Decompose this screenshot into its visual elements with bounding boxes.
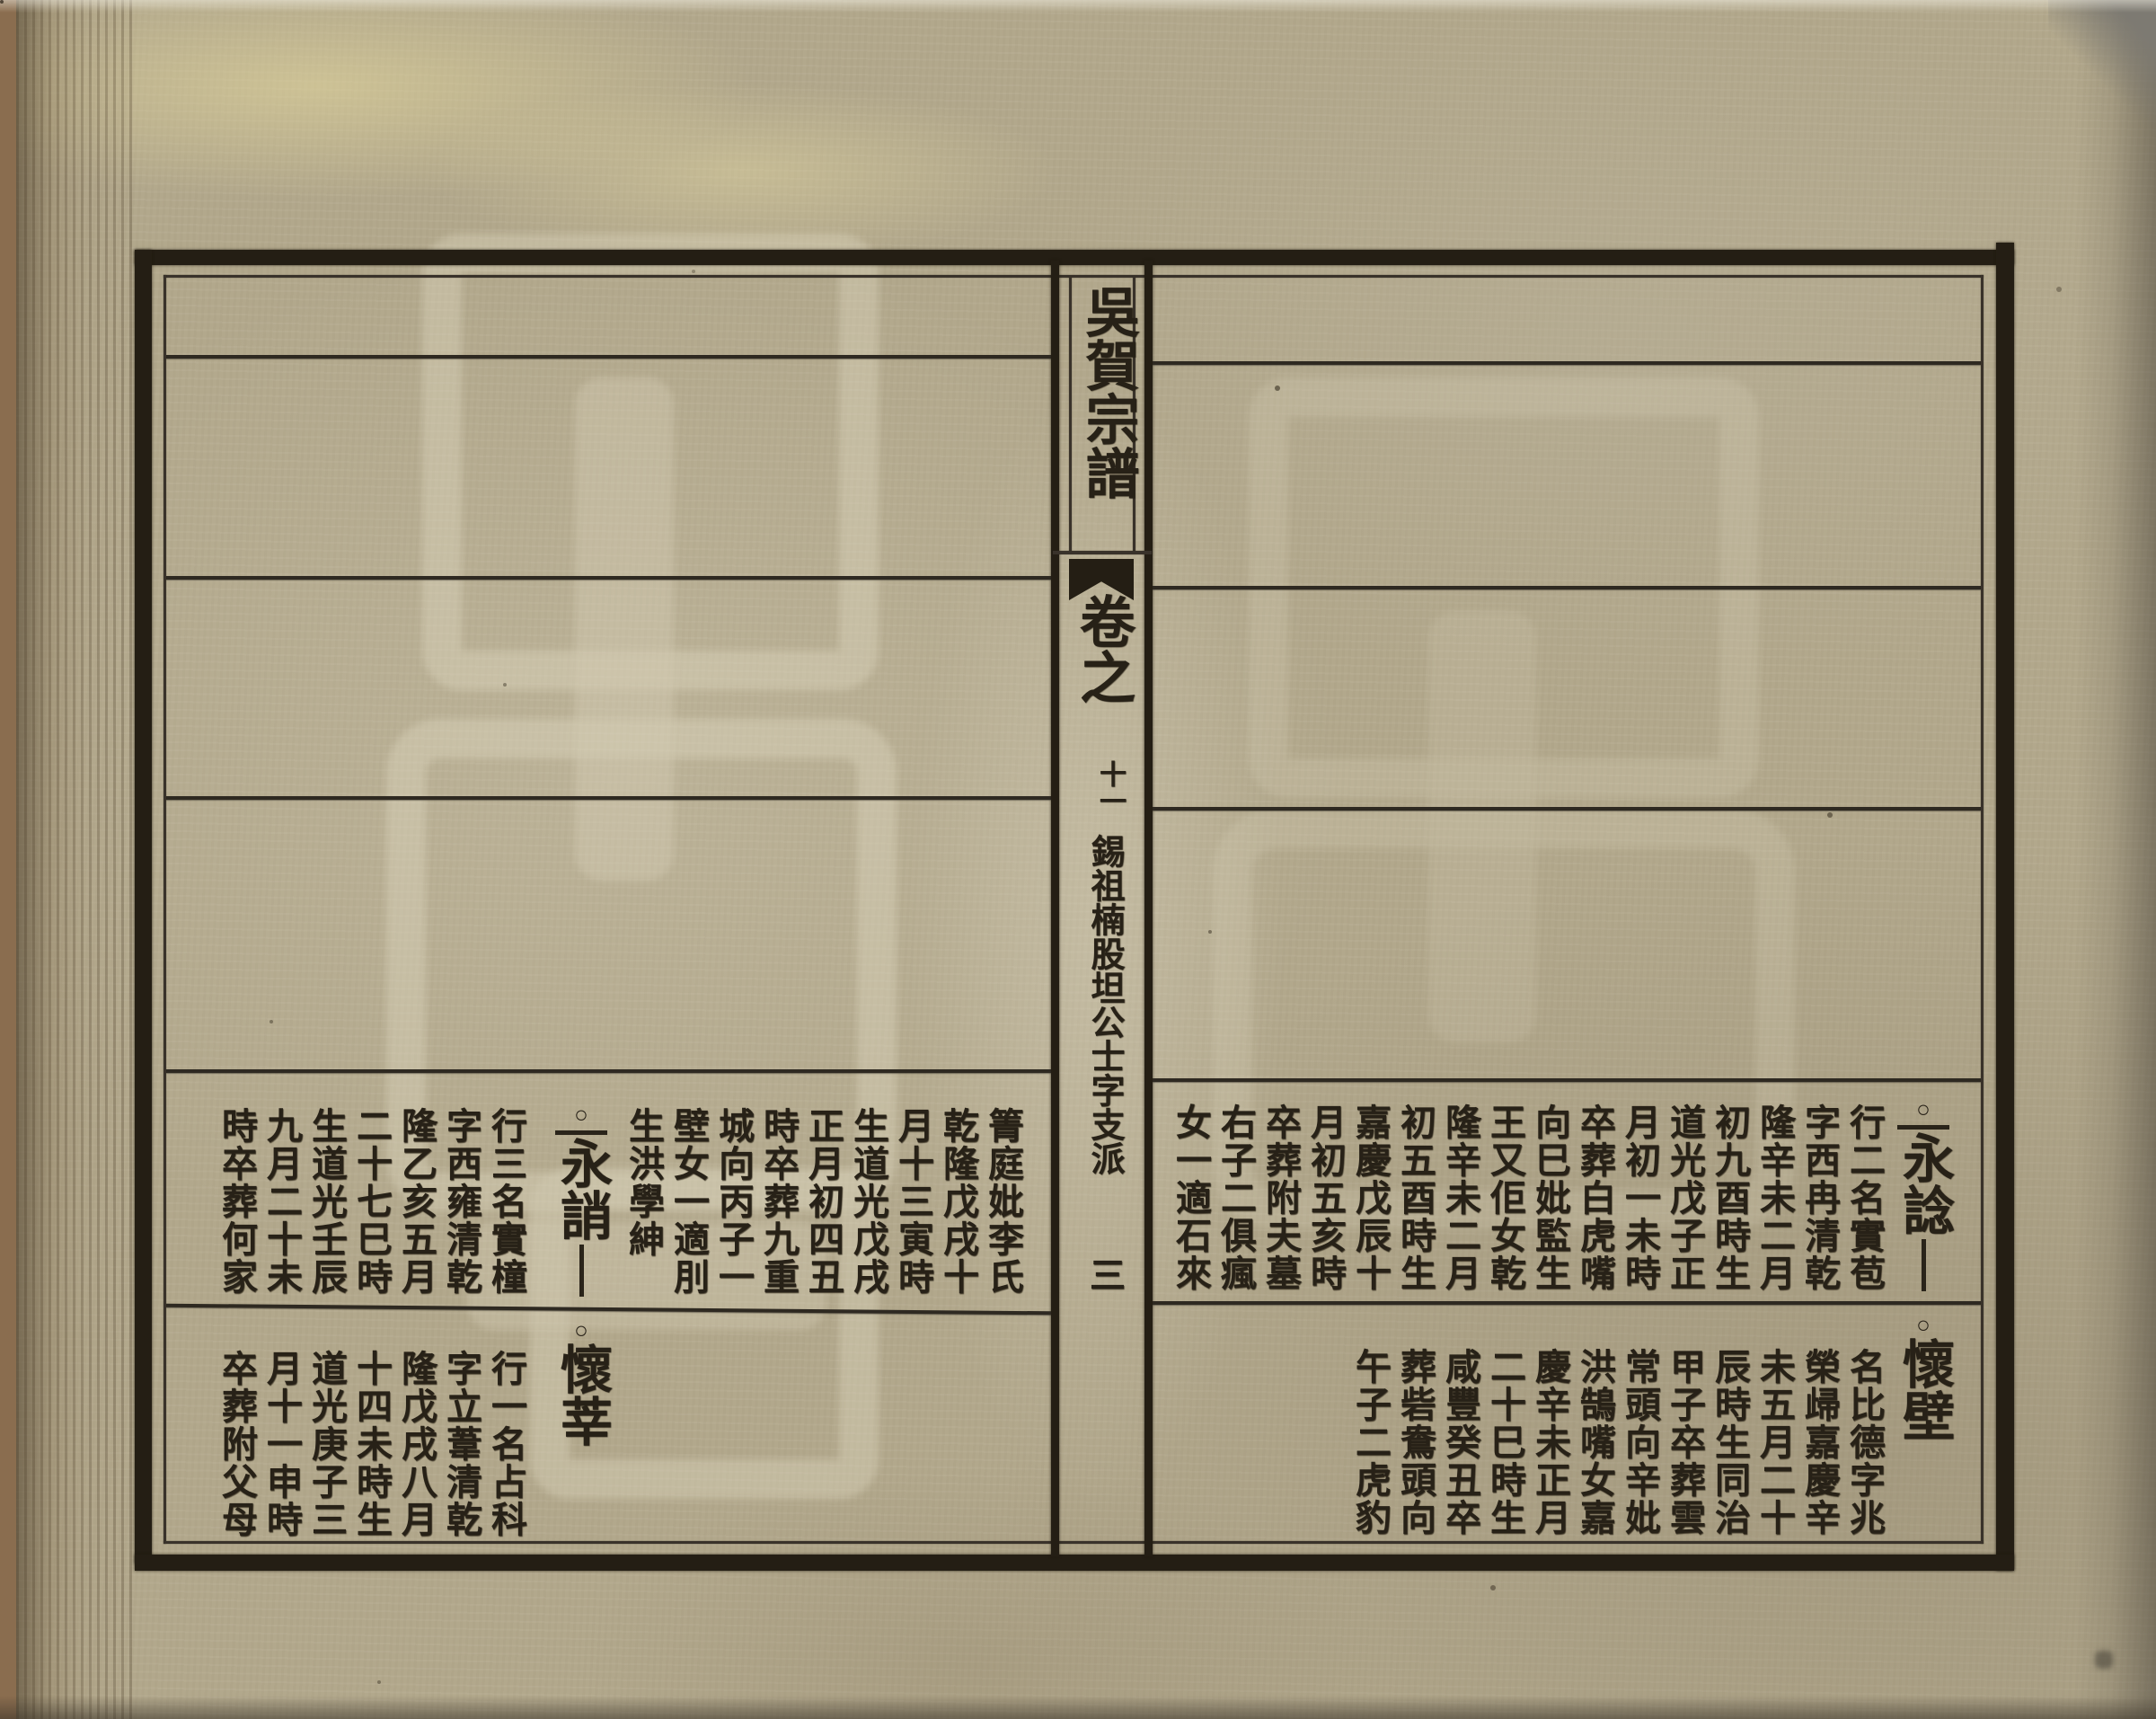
genealogy-scan-spread: 吳賀宗譜 卷之 十一 錫祖楠股坦公士字支派 三 箐庭妣李氏乾隆戊戌十月十三寅時生… [0, 0, 2156, 1719]
ancestor-name: 永誚 [545, 1137, 617, 1241]
text-column: 生道光戊戌 [848, 1107, 888, 1307]
text-column: 城向丙子一 [713, 1107, 753, 1307]
right-upper-detail-columns: 行二名實苞字西冉清乾隆辛未二月初九酉時生道光戊子正月初一未時卒葬白虎嘴向巳妣監生… [1165, 1103, 1884, 1303]
text-column: 向巳妣監生 [1530, 1103, 1569, 1303]
book-title: 吳賀宗譜 [1063, 284, 1140, 500]
page-number: 三 [1081, 1256, 1122, 1292]
branch-section-note: 錫祖楠股坦公士字支派 [1082, 834, 1122, 1175]
volume-label: 卷之 [1065, 593, 1137, 704]
text-column: 甲子卒葬雲 [1665, 1348, 1704, 1547]
inner-left-line [163, 275, 166, 1544]
text-column: 十四未時生 [351, 1350, 391, 1549]
lineage-circle-marker: ○ [574, 1319, 588, 1342]
top-right-corner-backdrop [2048, 0, 2156, 144]
paper-top-edge [0, 0, 2156, 13]
column-rule [166, 796, 1051, 800]
text-column: 右子二俱瘋 [1215, 1103, 1255, 1303]
lineage-circle-marker: ○ [574, 1103, 588, 1127]
ancestor-name: 懷壁 [1887, 1337, 1959, 1441]
inner-top-line [163, 275, 1984, 278]
column-rule [166, 576, 1051, 580]
spine-right-rule [1144, 261, 1153, 1556]
text-column: 卒葬附夫墓 [1260, 1103, 1300, 1303]
paper-bottom-edge [0, 1696, 2156, 1719]
frame-right-border [1996, 243, 2014, 1571]
descent-line-bottom [579, 1245, 584, 1297]
frame-bottom-border [135, 1555, 2014, 1571]
column-rule [1153, 1078, 1981, 1082]
ancestor-name: 懷莘 [545, 1342, 617, 1447]
text-column: 王又佢女乾 [1485, 1103, 1524, 1303]
text-column: 行二名實苞 [1844, 1103, 1884, 1303]
text-column: 未五月二十 [1754, 1348, 1794, 1547]
text-column: 卒葬白虎嘴 [1575, 1103, 1614, 1303]
descent-line-top [555, 1130, 607, 1135]
left-upper-intro-columns: 箐庭妣李氏乾隆戊戌十月十三寅時生道光戊戌正月初四丑時卒葬九重城向丙子一壁女一適刖… [618, 1107, 1022, 1307]
text-column: 隆辛未二月 [1754, 1103, 1794, 1303]
ancestor-entry-upper-left: ○ 永誚 [546, 1103, 616, 1297]
text-column: 月初一未時 [1620, 1103, 1659, 1303]
left-lower-detail-columns: 行一名占科字立葦清乾隆戊戌八月十四未時生道光庚子三月十一申時卒葬附父母 [211, 1350, 526, 1549]
column-rule [1153, 807, 1981, 811]
text-column: 洪鵠嘴女嘉 [1575, 1348, 1614, 1547]
text-column: 咸豐癸丑卒 [1440, 1348, 1480, 1547]
text-column: 行一名占科 [486, 1350, 526, 1549]
text-column: 箐庭妣李氏 [983, 1107, 1022, 1307]
text-column: 隆辛未二月 [1440, 1103, 1480, 1303]
text-column: 常頭向辛妣 [1620, 1348, 1659, 1547]
text-column: 生洪學紳 [623, 1107, 663, 1307]
text-column: 月初五亥時 [1305, 1103, 1345, 1303]
right-lower-detail-columns: 名比德字兆榮㱕嘉慶辛未五月二十辰時生同治甲子卒葬雲常頭向辛妣洪鵠嘴女嘉慶辛未正月… [1345, 1348, 1884, 1547]
text-column: 榮㱕嘉慶辛 [1799, 1348, 1839, 1547]
inner-right-line [1981, 275, 1984, 1544]
text-column: 行三名實橦 [486, 1107, 526, 1307]
left-upper-detail-columns: 行三名實橦字西雍清乾隆乙亥五月二十七巳時生道光壬辰九月二十未時卒葬何家 [211, 1107, 526, 1307]
text-column: 二十巳時生 [1485, 1348, 1524, 1547]
frame-top-border [135, 250, 2014, 265]
book-page-stack-edge [16, 0, 133, 1719]
ancestor-entry-lower-right: ○ 懷壁 [1888, 1314, 1958, 1441]
text-column: 葬砦鴦頭向 [1395, 1348, 1435, 1547]
text-column: 女一適石來 [1171, 1103, 1210, 1303]
ancestor-name: 永諗 [1887, 1131, 1959, 1236]
text-column: 字西雍清乾 [441, 1107, 481, 1307]
text-column: 字立葦清乾 [441, 1350, 481, 1549]
paper-specks [0, 0, 4, 4]
text-column: 隆戊戌八月 [396, 1350, 436, 1549]
text-column: 慶辛未正月 [1530, 1348, 1569, 1547]
text-column: 月十一申時 [261, 1350, 301, 1549]
column-rule [166, 1069, 1051, 1073]
lineage-circle-marker: ○ [1916, 1314, 1931, 1337]
text-column: 午子二虎豹 [1350, 1348, 1390, 1547]
text-column: 正月初四丑 [803, 1107, 843, 1307]
text-column: 隆乙亥五月 [396, 1107, 436, 1307]
ancestor-entry-upper-right: ○ 永諗 [1888, 1098, 1958, 1291]
descent-line-top [1897, 1125, 1949, 1130]
ancestor-entry-lower-left: ○ 懷莘 [546, 1319, 616, 1447]
text-column: 初五酉時生 [1395, 1103, 1435, 1303]
text-column: 時卒葬九重 [758, 1107, 798, 1307]
text-column: 月十三寅時 [893, 1107, 932, 1307]
text-column: 時卒葬何家 [216, 1107, 256, 1307]
text-column: 字西冉清乾 [1799, 1103, 1839, 1303]
frame-left-border [135, 250, 152, 1564]
spine-left-rule [1051, 261, 1059, 1556]
right-page-curl-shadow [2075, 0, 2156, 1719]
column-rule [1153, 361, 1981, 365]
lineage-circle-marker: ○ [1916, 1098, 1931, 1121]
column-rule [166, 355, 1051, 359]
text-column: 名比德字兆 [1844, 1348, 1884, 1547]
text-column: 嘉慶戊辰十 [1350, 1103, 1390, 1303]
text-column: 初九酉時生 [1710, 1103, 1749, 1303]
descent-line-bottom [1922, 1239, 1926, 1291]
text-column: 辰時生同治 [1710, 1348, 1749, 1547]
volume-number: 十一 [1081, 760, 1122, 814]
text-column: 乾隆戊戌十 [938, 1107, 977, 1307]
text-column: 生道光壬辰 [306, 1107, 346, 1307]
text-column: 二十七巳時 [351, 1107, 391, 1307]
text-column: 九月二十未 [261, 1107, 301, 1307]
text-column: 卒葬附父母 [216, 1350, 256, 1549]
text-column: 道光庚子三 [306, 1350, 346, 1549]
column-rule [1153, 586, 1981, 589]
text-column: 道光戊子正 [1665, 1103, 1704, 1303]
spine-title-box-bottom [1053, 551, 1152, 554]
text-column: 壁女一適刖 [668, 1107, 708, 1307]
